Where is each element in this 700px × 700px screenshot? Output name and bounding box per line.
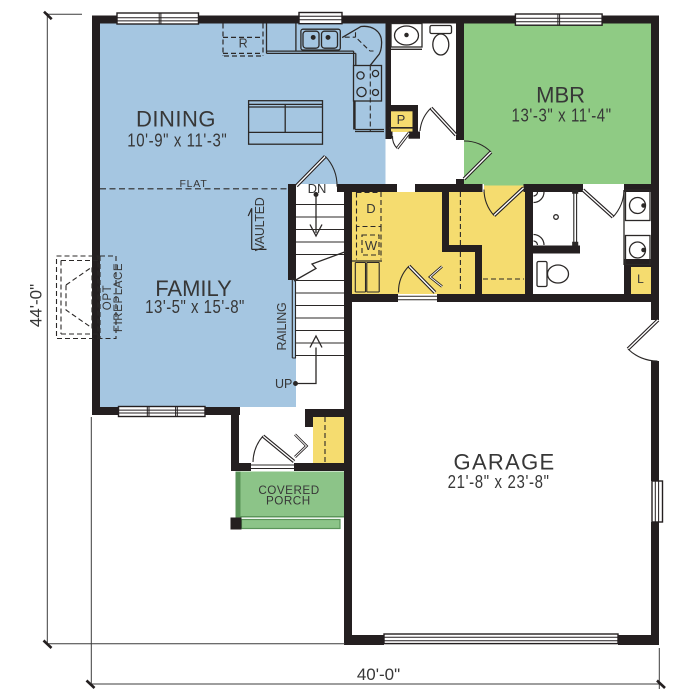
svg-text:W: W xyxy=(365,238,378,253)
svg-text:DINING: DINING xyxy=(136,106,216,131)
svg-text:21'-8" x 23'-8": 21'-8" x 23'-8" xyxy=(448,471,550,492)
svg-text:40'-0": 40'-0" xyxy=(357,665,400,684)
svg-text:44'-0": 44'-0" xyxy=(27,284,46,327)
svg-text:FLAT: FLAT xyxy=(179,178,207,190)
svg-text:PORCH: PORCH xyxy=(266,495,311,508)
svg-text:VAULTED: VAULTED xyxy=(253,197,267,251)
svg-text:UP: UP xyxy=(275,377,292,391)
svg-text:DN: DN xyxy=(308,181,327,196)
svg-text:RAILING: RAILING xyxy=(275,303,289,351)
svg-text:D: D xyxy=(366,201,375,216)
svg-text:MBR: MBR xyxy=(536,83,585,108)
svg-text:13'-3" x 11'-4": 13'-3" x 11'-4" xyxy=(512,105,612,126)
svg-text:L: L xyxy=(637,272,644,286)
svg-text:13'-5" x 15'-8": 13'-5" x 15'-8" xyxy=(145,296,245,317)
svg-text:10'-9" x 11'-3": 10'-9" x 11'-3" xyxy=(127,130,227,151)
svg-text:P: P xyxy=(397,112,406,127)
svg-text:R: R xyxy=(239,37,248,51)
